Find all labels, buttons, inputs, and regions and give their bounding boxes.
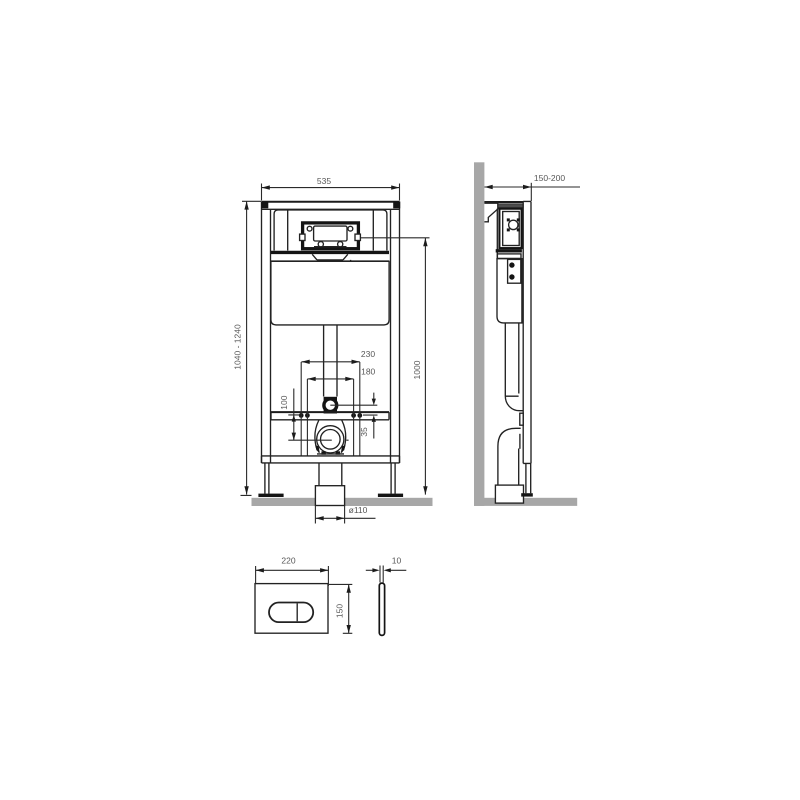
- svg-text:100: 100: [279, 395, 289, 409]
- svg-text:180: 180: [361, 366, 375, 376]
- svg-text:230: 230: [361, 349, 375, 359]
- svg-text:35: 35: [359, 427, 369, 437]
- svg-text:10: 10: [392, 556, 402, 566]
- svg-text:ø110: ø110: [349, 505, 368, 515]
- svg-text:220: 220: [281, 556, 295, 566]
- svg-text:1000: 1000: [412, 360, 422, 379]
- svg-text:150-200: 150-200: [534, 173, 565, 183]
- svg-text:150: 150: [335, 604, 345, 618]
- svg-text:1040 - 1240: 1040 - 1240: [233, 324, 243, 370]
- svg-text:535: 535: [317, 176, 331, 186]
